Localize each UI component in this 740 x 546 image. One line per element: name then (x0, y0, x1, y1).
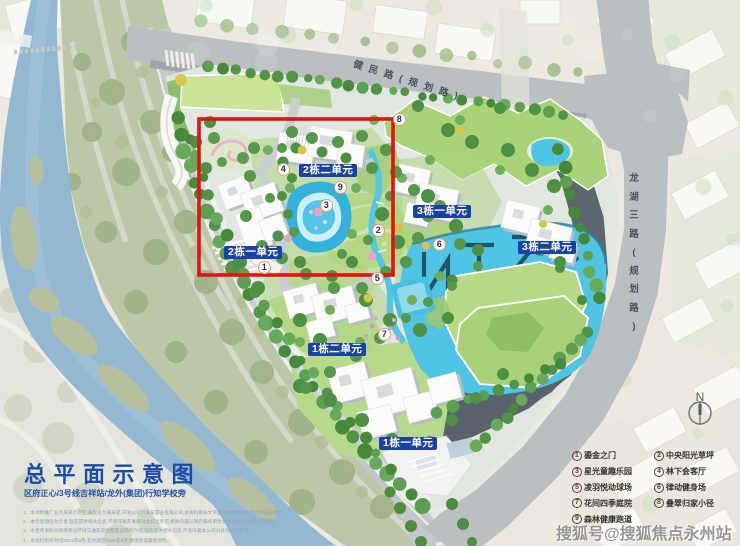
svg-text:N: N (696, 390, 705, 404)
